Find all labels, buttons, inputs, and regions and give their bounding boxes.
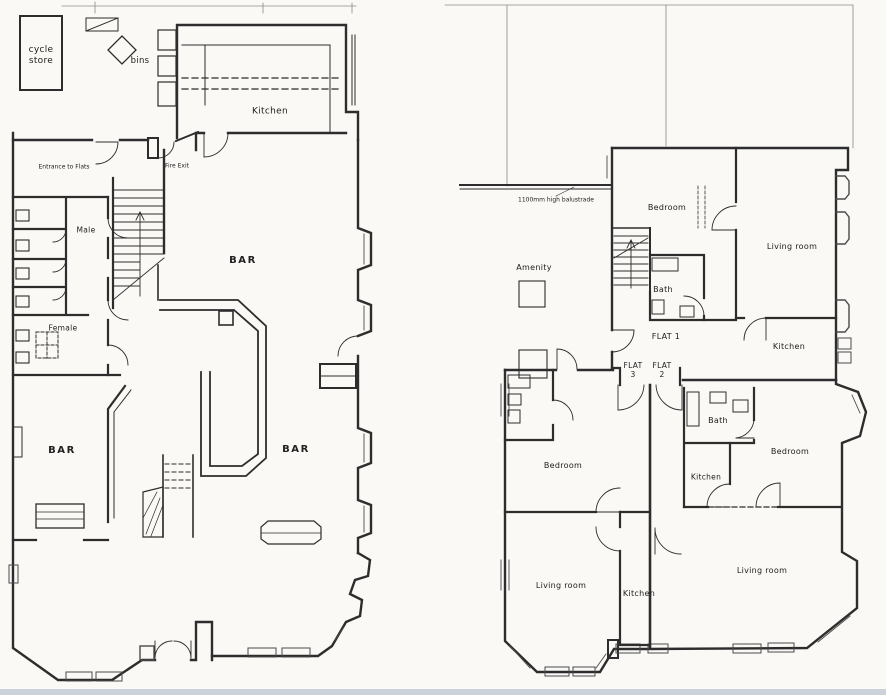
ff-flat2 — [655, 388, 841, 554]
gf-entrance-doors — [13, 132, 198, 658]
label-balustrade-note: 1100mm high balustrade — [518, 196, 594, 203]
label-bath-flat2: Bath — [708, 416, 728, 426]
label-amenity: Amenity — [516, 263, 551, 273]
ff-amenity-terrace — [460, 185, 613, 378]
label-kitchen-flat1: Kitchen — [773, 342, 805, 352]
gf-toilets — [13, 197, 128, 375]
floorplan-scan: cycle store bins Kitchen Entrance to Fla… — [0, 0, 886, 695]
label-bedroom-flat2: Bedroom — [771, 447, 809, 457]
label-bedroom-flat1: Bedroom — [648, 203, 686, 213]
label-bar-right: BAR — [282, 444, 310, 456]
label-flat3: FLAT 3 — [624, 361, 643, 379]
label-flat1: FLAT 1 — [652, 332, 680, 342]
floorplan-linework — [0, 0, 886, 695]
label-female-wc: Female — [49, 324, 78, 333]
label-bar-main: BAR — [229, 255, 257, 267]
gf-bar-counter — [160, 300, 266, 476]
label-bins: bins — [131, 56, 150, 66]
label-living-room-flat2: Living room — [737, 566, 787, 576]
scanner-edge-strip — [0, 689, 886, 695]
label-gf-kitchen: Kitchen — [252, 107, 288, 118]
gf-windows — [9, 234, 364, 681]
label-male-wc: Male — [77, 226, 96, 235]
gf-accessible-wc — [36, 332, 58, 358]
label-bar-left: BAR — [48, 445, 76, 457]
label-cycle-store: cycle store — [29, 45, 54, 67]
label-kitchen-flat2: Kitchen — [691, 473, 721, 482]
ff-site-boundary — [445, 5, 853, 186]
label-fire-exit: Fire Exit — [165, 162, 189, 169]
label-kitchen-flat3: Kitchen — [623, 589, 655, 599]
label-bath-flat1: Bath — [653, 285, 673, 295]
label-entrance-to-flats: Entrance to Flats — [39, 163, 90, 170]
ff-outer-walls — [505, 148, 866, 672]
label-living-room-flat1: Living room — [767, 242, 817, 252]
gf-lower-walls — [13, 336, 358, 540]
label-flat2: FLAT 2 — [653, 361, 672, 379]
gf-kitchen-room — [177, 25, 358, 157]
label-living-room-flat3: Living room — [536, 581, 586, 591]
label-bedroom-flat3: Bedroom — [544, 461, 582, 471]
ff-stairs — [612, 228, 650, 292]
gf-site-boundary — [62, 2, 356, 13]
gf-stairs — [113, 150, 164, 308]
ff-windows — [501, 156, 860, 676]
ff-flat3 — [505, 370, 650, 645]
